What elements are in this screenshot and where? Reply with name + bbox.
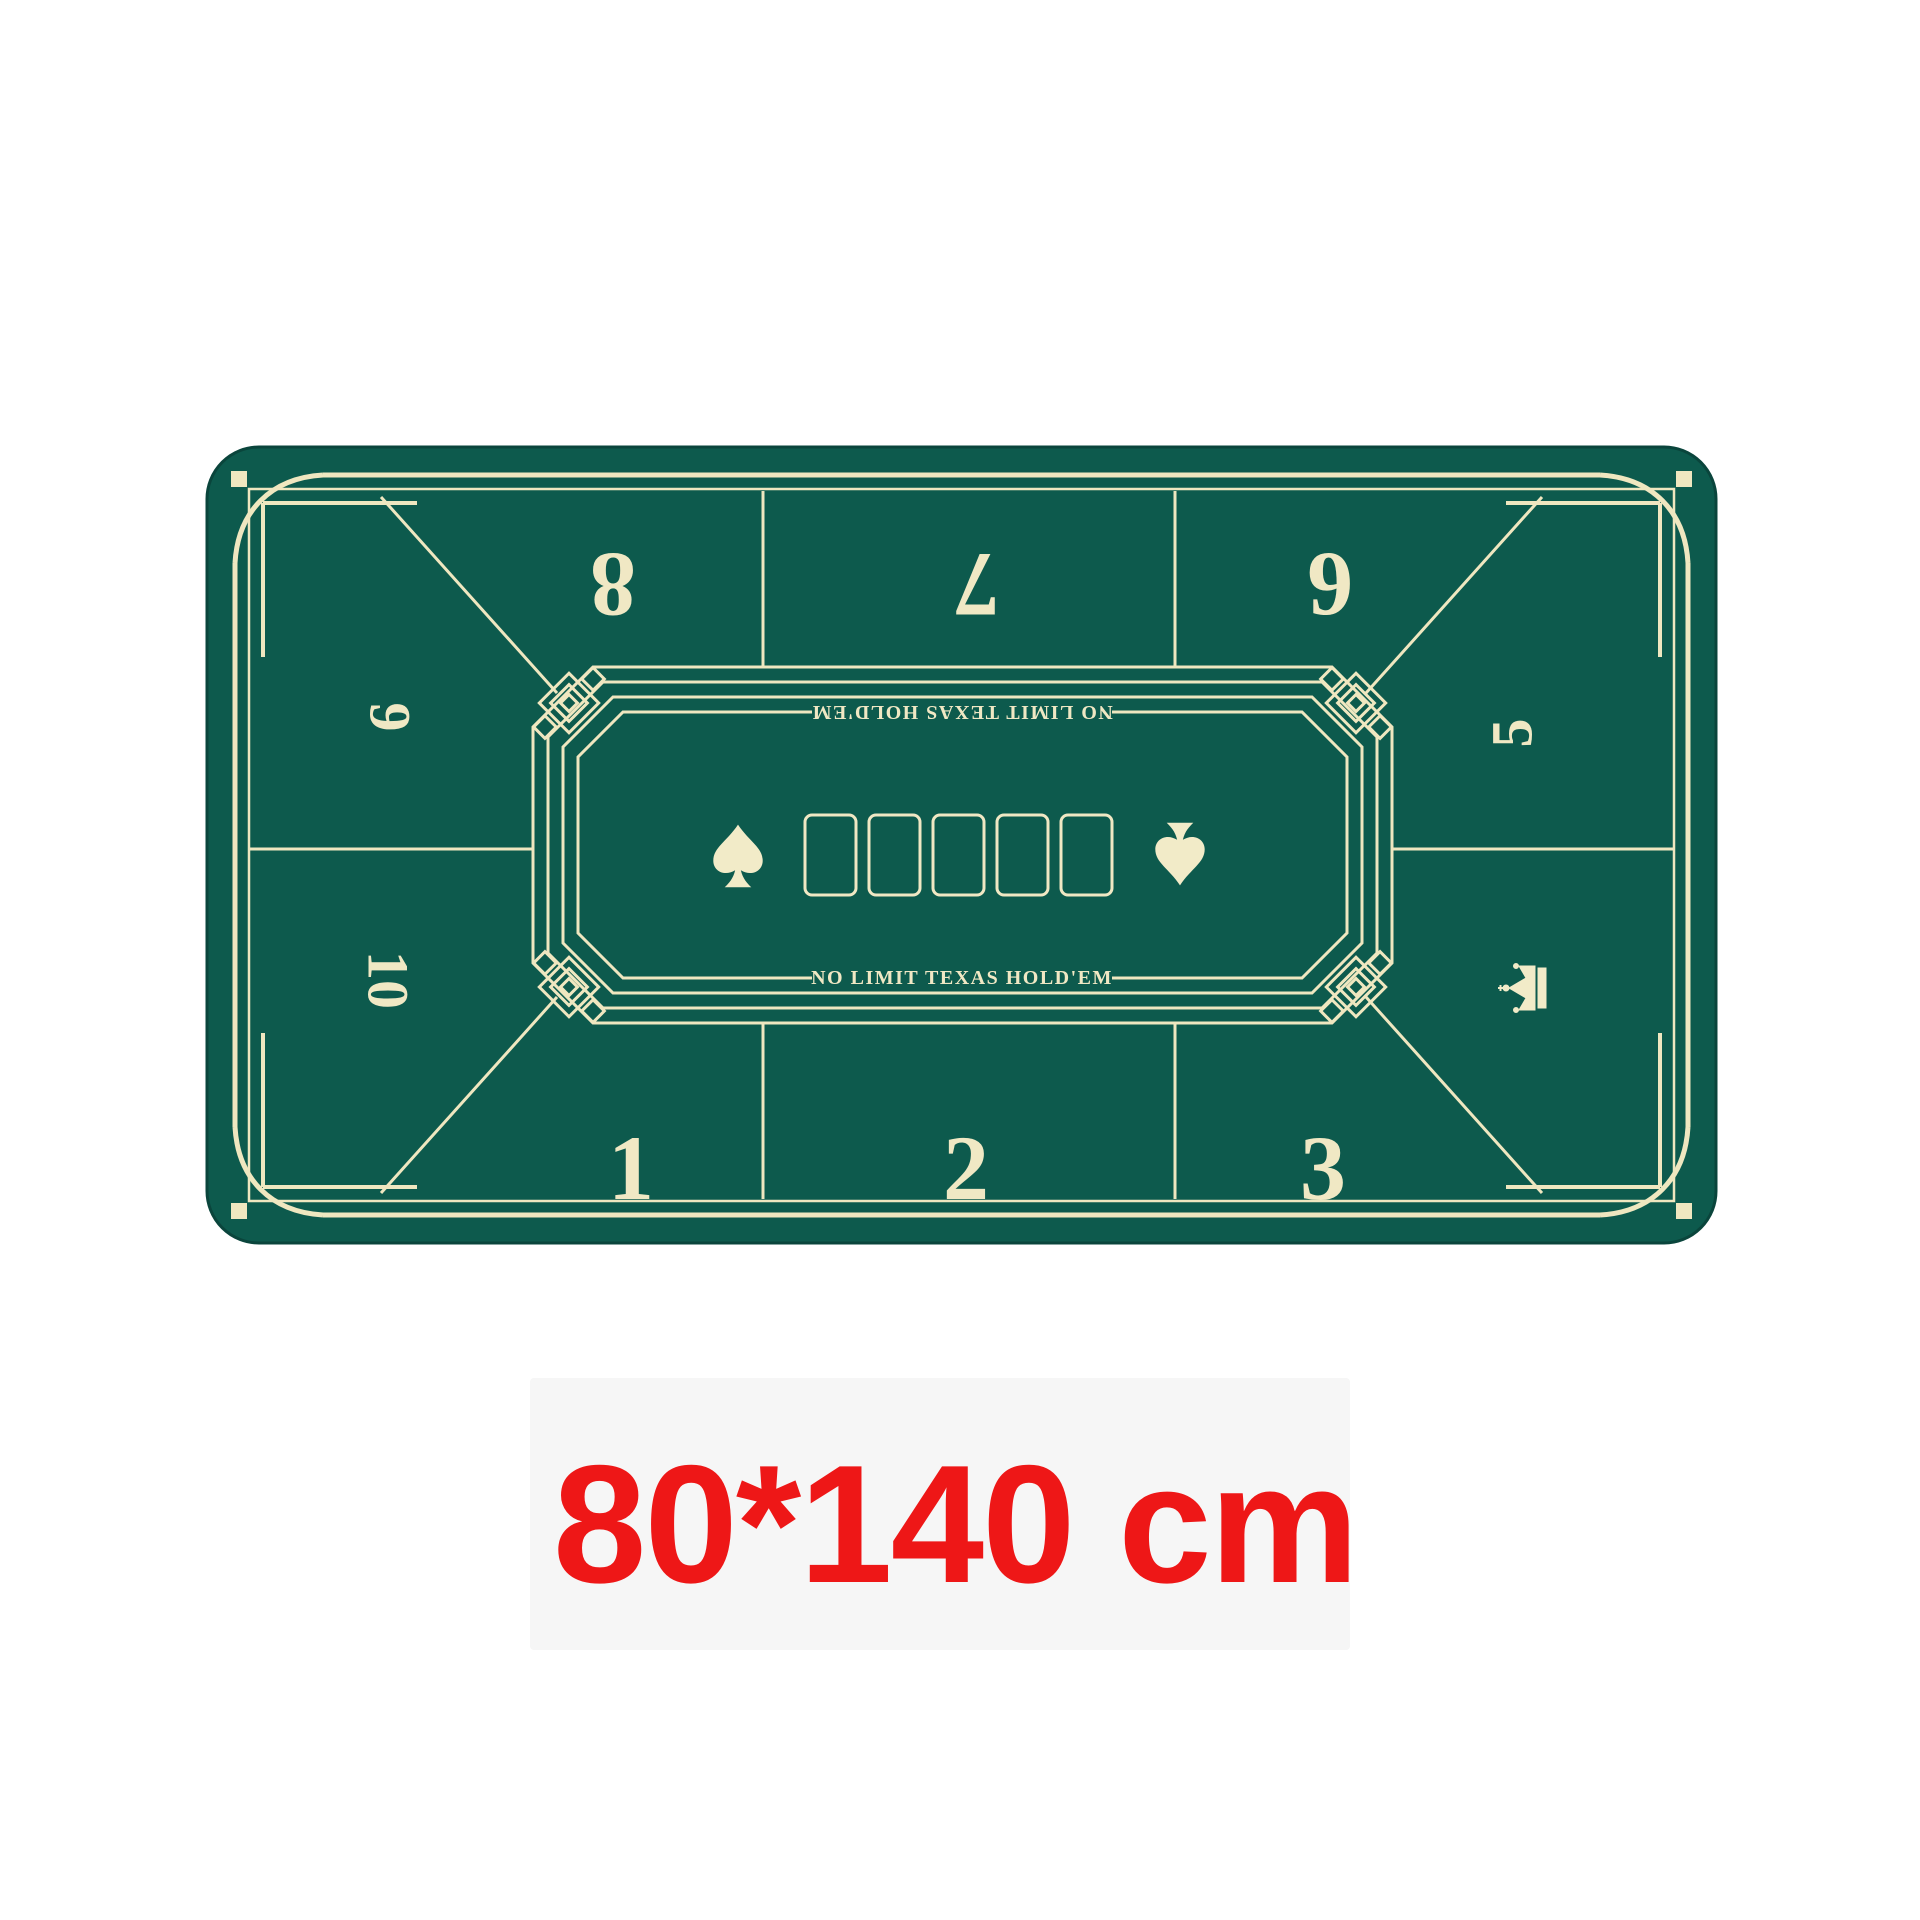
seat-number-8: 8: [590, 534, 636, 636]
seat-number-3: 3: [1300, 1117, 1346, 1219]
table-name-text: NO LIMIT TEXAS HOLD'EM: [811, 967, 1113, 989]
table-name-text-rotated: NO LIMIT TEXAS HOLD'EM: [811, 701, 1113, 723]
seat-number-2: 2: [943, 1117, 989, 1219]
dimension-label: 80*140 cm: [0, 1432, 1910, 1617]
seat-number-1: 1: [608, 1117, 654, 1219]
poker-mat: NO LIMIT TEXAS HOLD'EM NO LIMIT TEXAS HO…: [205, 445, 1718, 1245]
seat-number-9: 9: [358, 703, 423, 732]
seat-number-10: 10: [356, 951, 421, 1009]
product-image: NO LIMIT TEXAS HOLD'EM NO LIMIT TEXAS HO…: [0, 0, 1920, 1920]
seat-number-5: 5: [1480, 719, 1545, 748]
seat-number-7: 7: [954, 534, 1000, 636]
poker-mat-graphic: NO LIMIT TEXAS HOLD'EM NO LIMIT TEXAS HO…: [205, 445, 1718, 1245]
seat-number-6: 6: [1307, 534, 1353, 636]
